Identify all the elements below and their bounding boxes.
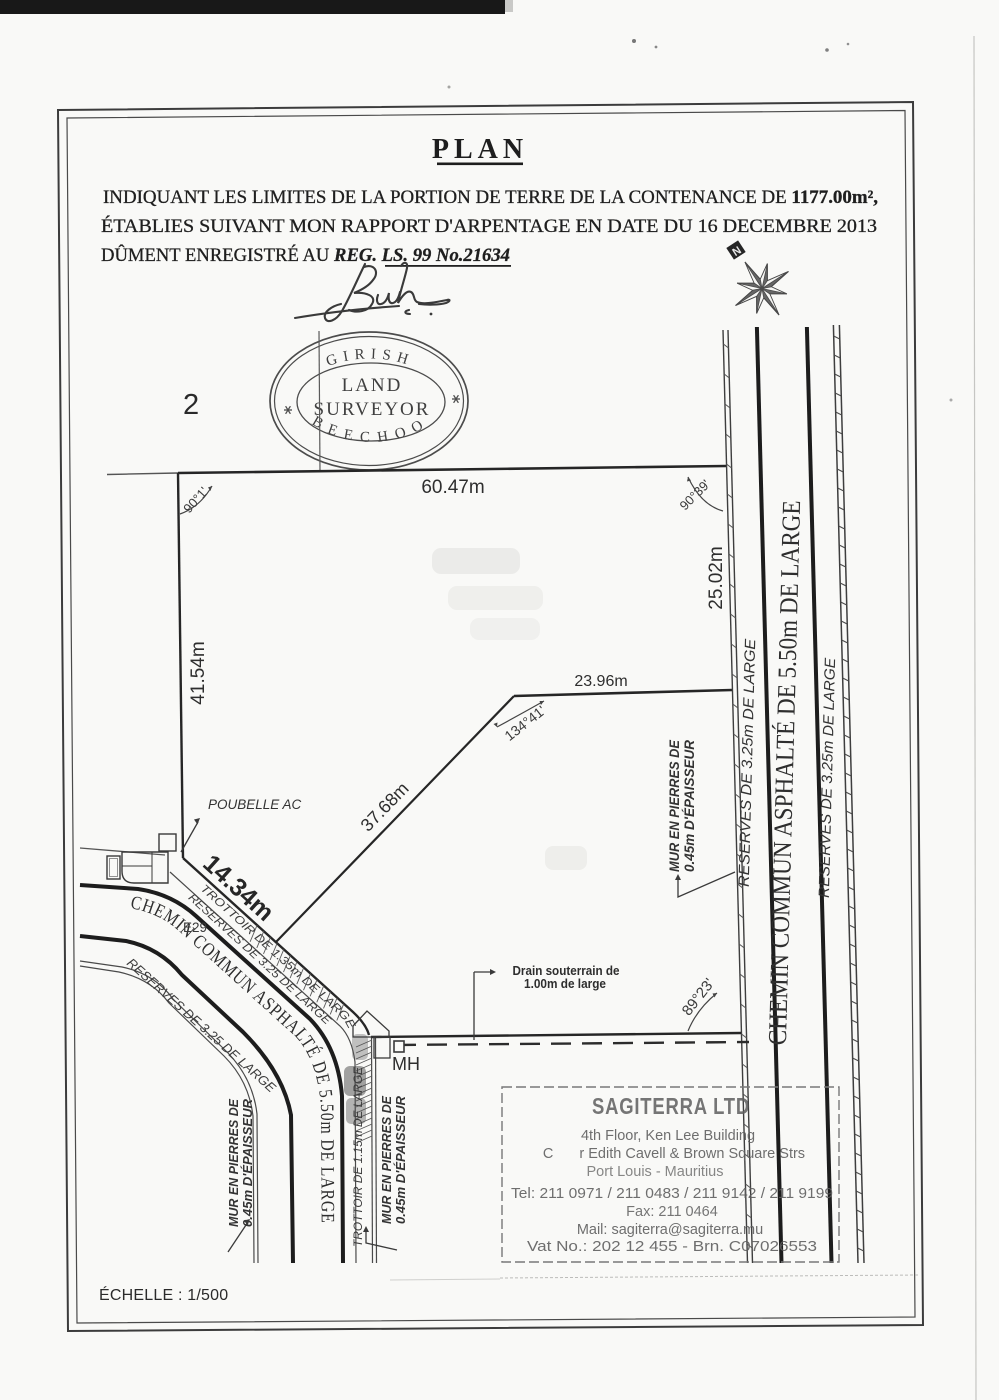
svg-text:2: 2	[183, 389, 199, 421]
svg-text:RESERVES DE 3.25m DE LARGE: RESERVES DE 3.25m DE LARGE	[736, 638, 760, 887]
svg-text:0.45m D'ÉPAISSEUR: 0.45m D'ÉPAISSEUR	[240, 1098, 255, 1227]
svg-text:90°39': 90°39'	[677, 477, 713, 513]
svg-text:37.68m: 37.68m	[357, 778, 413, 835]
svg-text:Port Louis - Mauritius: Port Louis - Mauritius	[587, 1164, 724, 1180]
svg-text:POUBELLE AC: POUBELLE AC	[208, 797, 302, 812]
svg-text:ÉCHELLE : 1/500: ÉCHELLE : 1/500	[99, 1285, 228, 1304]
svg-text:SAGITERRA LTD: SAGITERRA LTD	[592, 1093, 750, 1119]
svg-text:1.00m de large: 1.00m de large	[524, 976, 606, 991]
svg-text:Tel: 211 0971 / 211 0483 / 211: Tel: 211 0971 / 211 0483 / 211 9142 / 21…	[511, 1186, 833, 1202]
svg-text:LAND: LAND	[342, 375, 403, 396]
svg-text:ÉTABLIES SUIVANT MON RAPPORT D: ÉTABLIES SUIVANT MON RAPPORT D'ARPENTAGE…	[101, 215, 877, 237]
svg-text:MUR EN PIERRES DE: MUR EN PIERRES DE	[667, 739, 682, 872]
svg-text:E29: E29	[183, 920, 207, 935]
svg-text:90°1': 90°1'	[180, 484, 211, 516]
svg-text:Vat No.: 202 12 455 - Brn. C07: Vat No.: 202 12 455 - Brn. C07026553	[527, 1239, 817, 1255]
svg-text:GIRISH: GIRISH	[324, 346, 415, 370]
svg-text:DÛMENT ENREGISTRÉ AU REG. LS.: DÛMENT ENREGISTRÉ AU REG. LS. 99 No.2163…	[101, 244, 510, 266]
svg-text:Fax: 211 0464: Fax: 211 0464	[626, 1204, 718, 1220]
svg-text:Mail: sagiterra@sagiterra.mu: Mail: sagiterra@sagiterra.mu	[577, 1222, 763, 1238]
svg-text:25.02m: 25.02m	[706, 546, 727, 609]
svg-text:SURVEYOR: SURVEYOR	[314, 399, 431, 420]
svg-text:MH: MH	[392, 1054, 420, 1074]
svg-text:RESERVES DE 3.25 DE LARGE: RESERVES DE 3.25 DE LARGE	[124, 955, 279, 1095]
svg-text:0.45m D'ÉPAISSEUR: 0.45m D'ÉPAISSEUR	[393, 1095, 408, 1224]
svg-text:PLAN: PLAN	[432, 134, 528, 165]
svg-text:CHEMIN COMMUN ASPHALTÉ DE: CHEMIN COMMUN ASPHALTÉ DE 5.50m DE LARGE	[763, 500, 806, 1046]
svg-text:MUR EN PIERRES DE: MUR EN PIERRES DE	[226, 1099, 241, 1227]
svg-text:134°41': 134°41'	[501, 702, 548, 744]
svg-text:60.47m: 60.47m	[421, 477, 484, 498]
svg-text:RESERVES DE 3.25m DE LARGE: RESERVES DE 3.25m DE LARGE	[816, 657, 839, 898]
svg-text:Cr Edith Cavell & Brown Square: Cr Edith Cavell & Brown Square Strs	[543, 1146, 805, 1162]
svg-text:TROTTOIR DE 1.15m DE LARGE: TROTTOIR DE 1.15m DE LARGE	[351, 1066, 365, 1247]
svg-text:0.45m D'ÉPAISSEUR: 0.45m D'ÉPAISSEUR	[682, 740, 697, 872]
svg-text:INDIQUANT LES LIMITES DE LA PO: INDIQUANT LES LIMITES DE LA PORTION DE T…	[103, 188, 878, 208]
svg-text:MUR EN PIERRES DE: MUR EN PIERRES DE	[379, 1096, 394, 1224]
svg-text:23.96m: 23.96m	[574, 673, 627, 690]
svg-text:41.54m: 41.54m	[188, 641, 209, 704]
svg-text:4th Floor, Ken Lee Building: 4th Floor, Ken Lee Building	[581, 1128, 755, 1144]
